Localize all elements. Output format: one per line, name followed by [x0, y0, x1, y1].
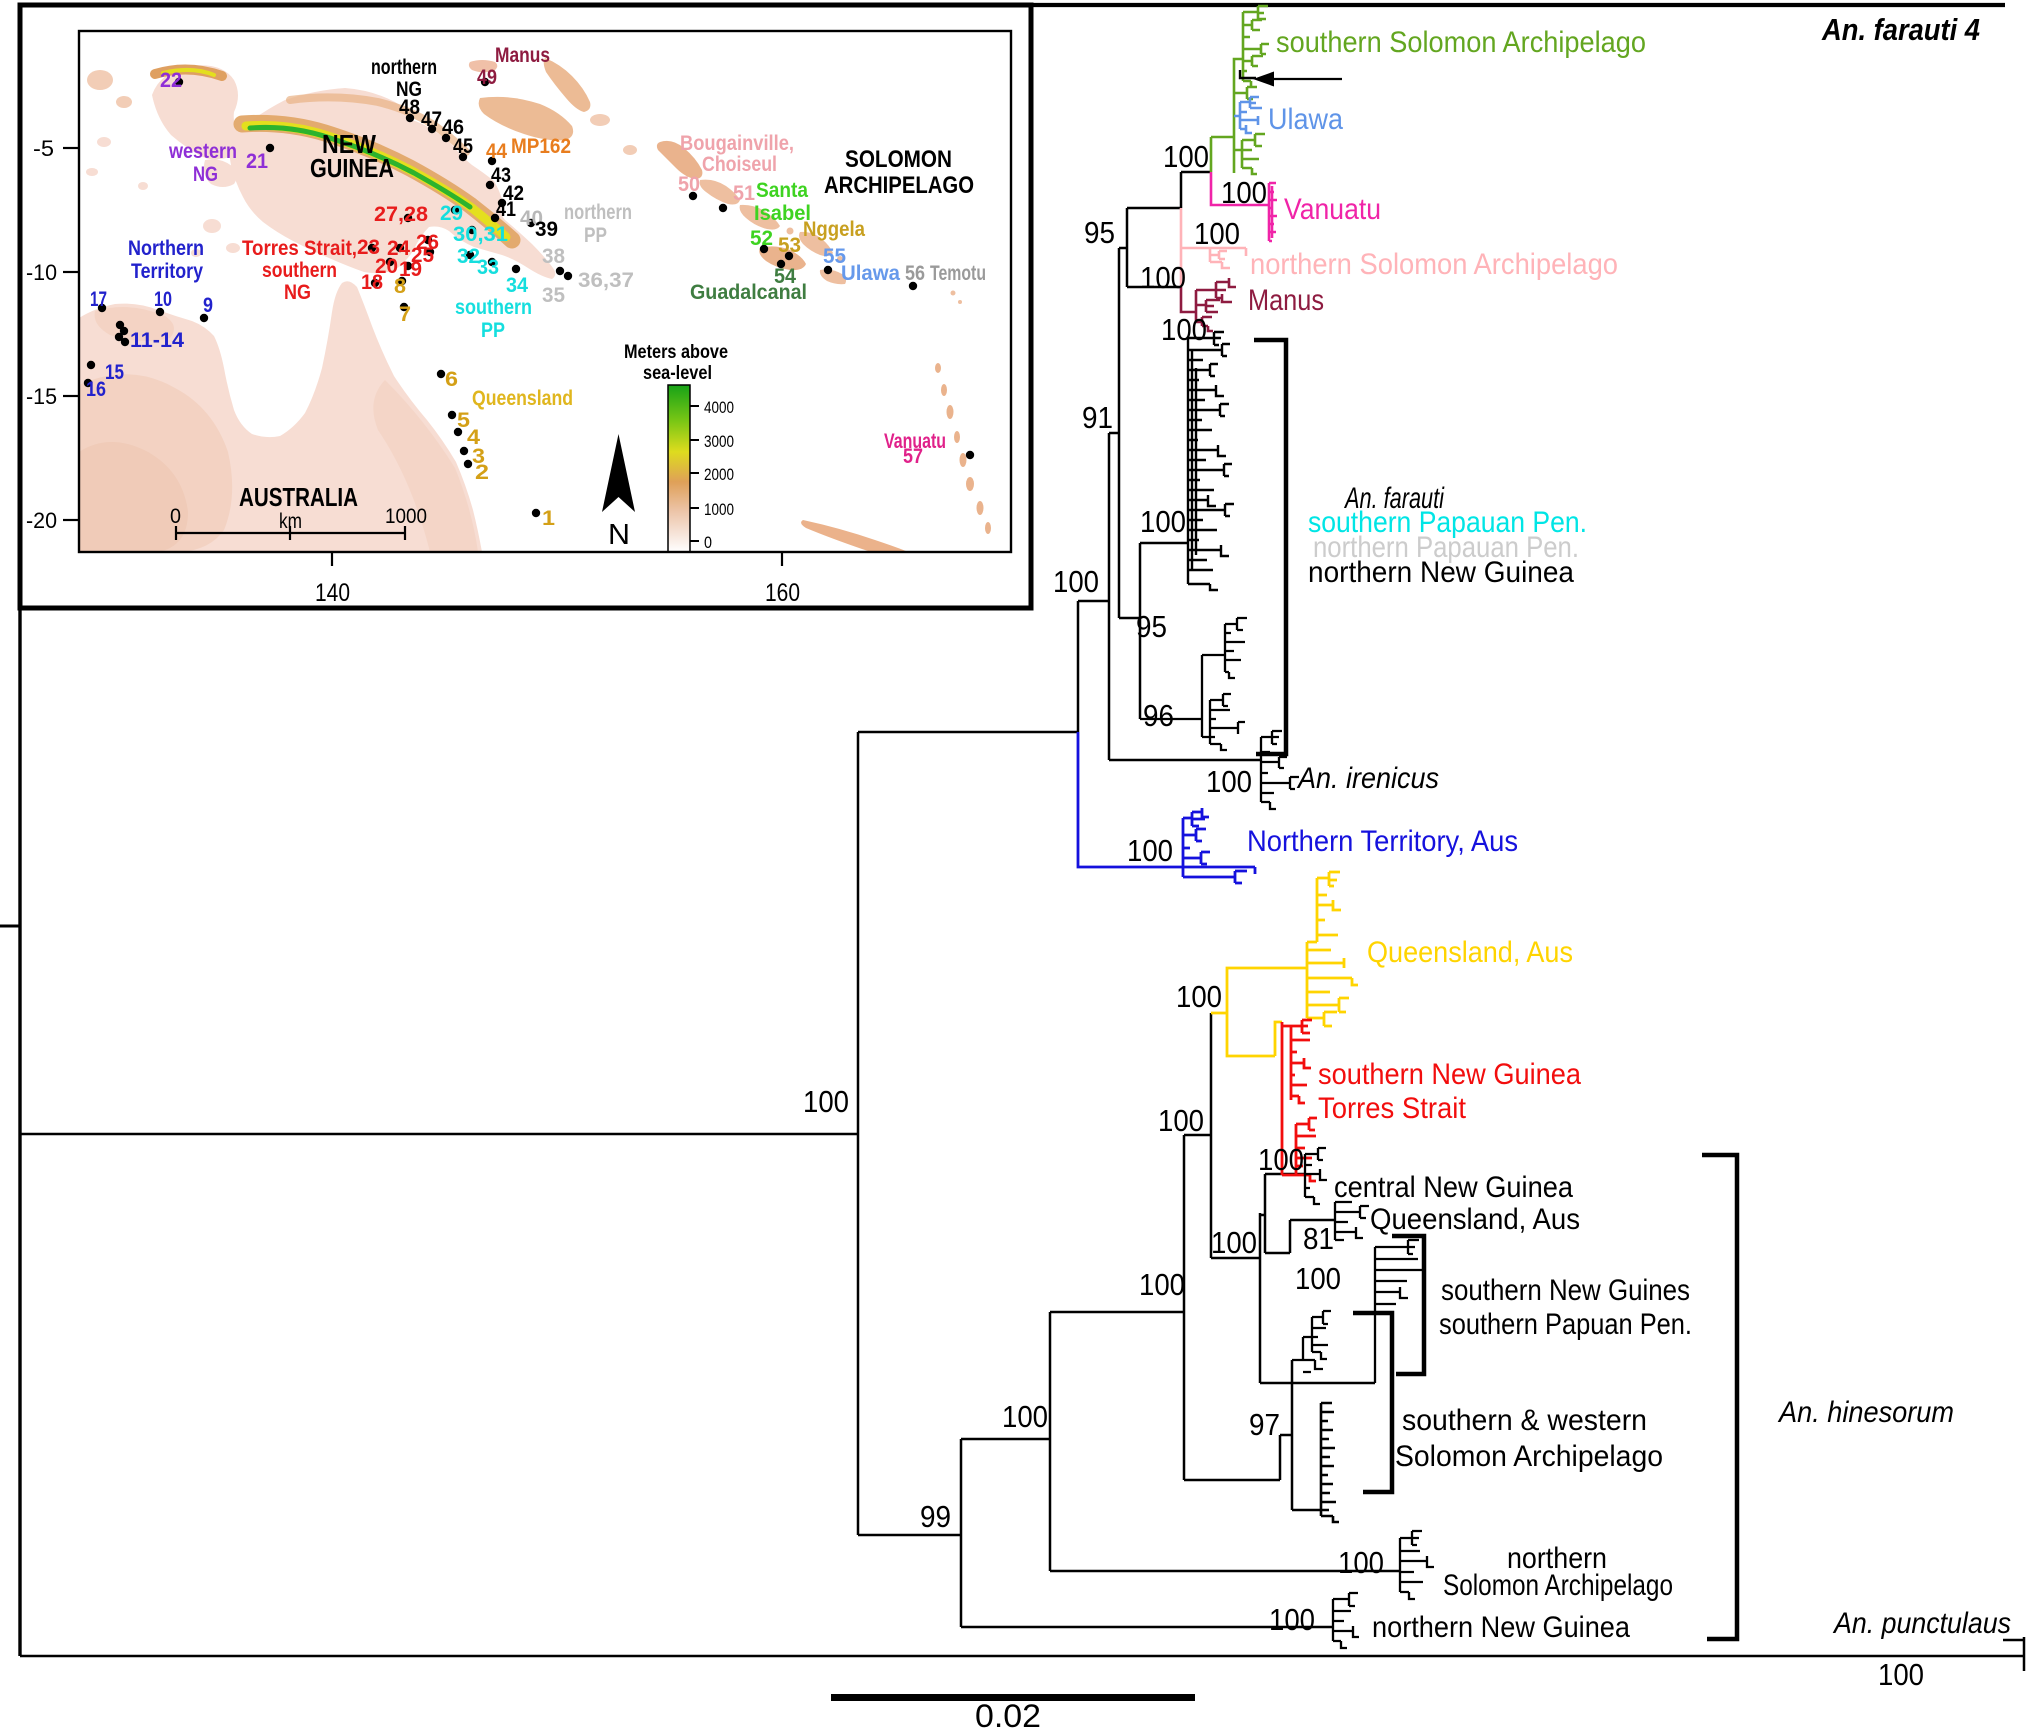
svg-text:51: 51	[733, 182, 755, 205]
svg-text:100: 100	[1163, 139, 1209, 174]
svg-text:99: 99	[920, 1499, 951, 1534]
svg-text:53: 53	[778, 234, 801, 257]
svg-text:100: 100	[1140, 504, 1186, 539]
svg-text:Guadalcanal: Guadalcanal	[690, 281, 807, 304]
svg-text:140: 140	[315, 579, 350, 607]
svg-text:southern: southern	[455, 296, 532, 319]
svg-text:56: 56	[905, 262, 925, 285]
svg-text:MP162: MP162	[511, 135, 571, 158]
svg-text:100: 100	[1053, 564, 1099, 599]
svg-text:30,31: 30,31	[453, 223, 508, 246]
svg-text:100: 100	[1206, 764, 1252, 799]
svg-text:100: 100	[1127, 833, 1173, 868]
svg-text:100: 100	[1258, 1142, 1304, 1177]
svg-text:northern New Guinea: northern New Guinea	[1308, 556, 1574, 589]
svg-text:33: 33	[477, 256, 499, 279]
svg-text:100: 100	[1161, 312, 1207, 347]
svg-text:1000: 1000	[385, 505, 427, 528]
svg-text:100: 100	[1221, 175, 1267, 210]
svg-text:southern & western: southern & western	[1402, 1404, 1647, 1437]
svg-text:100: 100	[1140, 260, 1186, 295]
svg-text:100: 100	[1269, 1602, 1315, 1637]
svg-text:27,28: 27,28	[374, 203, 428, 226]
svg-text:ARCHIPELAGO: ARCHIPELAGO	[824, 172, 974, 199]
svg-text:49: 49	[477, 66, 497, 89]
svg-text:100: 100	[1878, 1657, 1924, 1692]
svg-text:21: 21	[246, 150, 268, 173]
svg-text:17: 17	[90, 288, 107, 311]
svg-text:50: 50	[678, 173, 700, 196]
svg-text:2: 2	[475, 461, 489, 484]
svg-text:8: 8	[394, 275, 406, 298]
svg-text:100: 100	[803, 1084, 849, 1119]
svg-text:3000: 3000	[704, 432, 734, 451]
svg-text:1000: 1000	[704, 500, 734, 519]
svg-text:Santa: Santa	[756, 179, 808, 202]
svg-text:An. farauti 4: An. farauti 4	[1821, 12, 1980, 47]
svg-text:Queensland: Queensland	[472, 387, 573, 410]
svg-text:AUSTRALIA: AUSTRALIA	[239, 482, 358, 512]
svg-text:6: 6	[445, 368, 458, 391]
svg-text:15: 15	[105, 361, 124, 384]
svg-text:18: 18	[361, 271, 383, 294]
svg-text:km: km	[279, 510, 302, 533]
svg-text:Torres Strait: Torres Strait	[1318, 1092, 1467, 1125]
svg-text:34: 34	[506, 274, 528, 297]
svg-text:48: 48	[399, 96, 420, 119]
svg-text:NG: NG	[193, 163, 218, 186]
svg-text:GUINEA: GUINEA	[310, 153, 394, 183]
svg-text:Meters above: Meters above	[624, 342, 728, 363]
svg-text:Manus: Manus	[1248, 284, 1324, 317]
svg-text:Queensland, Aus: Queensland, Aus	[1370, 1203, 1580, 1236]
svg-text:38: 38	[542, 245, 565, 268]
svg-text:44: 44	[486, 140, 507, 163]
svg-text:1: 1	[542, 507, 555, 530]
svg-text:southern Solomon Archipelago: southern Solomon Archipelago	[1276, 26, 1646, 59]
svg-text:western: western	[168, 140, 237, 163]
svg-text:35: 35	[542, 284, 565, 307]
svg-text:Solomon Archipelago: Solomon Archipelago	[1395, 1440, 1663, 1473]
svg-text:45: 45	[453, 135, 473, 158]
svg-text:Queensland, Aus: Queensland, Aus	[1367, 936, 1573, 969]
svg-text:southern New Guines: southern New Guines	[1441, 1274, 1690, 1307]
svg-text:Vanuatu: Vanuatu	[1284, 193, 1381, 226]
svg-text:sea-level: sea-level	[643, 363, 712, 384]
svg-text:100: 100	[1158, 1103, 1204, 1138]
svg-text:Ulawa: Ulawa	[1268, 103, 1343, 136]
svg-text:100: 100	[1176, 979, 1222, 1014]
svg-text:81: 81	[1303, 1221, 1334, 1256]
svg-text:southern: southern	[262, 259, 337, 282]
svg-text:Nggela: Nggela	[803, 218, 865, 241]
svg-text:100: 100	[1338, 1545, 1384, 1580]
svg-text:95: 95	[1136, 609, 1167, 644]
svg-text:95: 95	[1084, 215, 1115, 250]
svg-text:36,37: 36,37	[578, 269, 634, 292]
svg-text:SOLOMON: SOLOMON	[845, 146, 952, 173]
svg-text:0: 0	[704, 533, 712, 552]
svg-text:100: 100	[1002, 1399, 1048, 1434]
svg-text:57: 57	[903, 445, 923, 468]
svg-text:11-14: 11-14	[130, 329, 184, 352]
svg-text:4000: 4000	[704, 398, 734, 417]
svg-text:-15: -15	[26, 384, 57, 409]
svg-text:northern New Guinea: northern New Guinea	[1372, 1611, 1630, 1644]
svg-text:An. irenicus: An. irenicus	[1296, 762, 1439, 795]
svg-text:PP: PP	[584, 224, 607, 247]
svg-text:An. hinesorum: An. hinesorum	[1777, 1396, 1954, 1429]
svg-text:Solomon Archipelago: Solomon Archipelago	[1443, 1569, 1673, 1602]
svg-text:southern Papuan Pen.: southern Papuan Pen.	[1439, 1308, 1692, 1341]
svg-text:47: 47	[421, 108, 442, 131]
svg-text:100: 100	[1211, 1225, 1257, 1260]
svg-text:PP: PP	[481, 319, 505, 342]
svg-text:Bougainville,: Bougainville,	[680, 132, 794, 155]
svg-text:southern New Guinea: southern New Guinea	[1318, 1058, 1581, 1091]
svg-text:39: 39	[535, 218, 558, 241]
svg-text:northern Solomon Archipelago: northern Solomon Archipelago	[1250, 248, 1618, 281]
svg-text:central New Guinea: central New Guinea	[1334, 1171, 1573, 1204]
svg-text:96: 96	[1143, 698, 1174, 733]
svg-text:0.02: 0.02	[975, 1698, 1041, 1728]
svg-text:97: 97	[1249, 1407, 1280, 1442]
svg-text:160: 160	[765, 579, 800, 607]
svg-text:10: 10	[154, 288, 172, 311]
svg-text:9: 9	[203, 294, 213, 317]
svg-text:Territory: Territory	[131, 260, 203, 283]
svg-text:16: 16	[86, 378, 106, 401]
svg-text:Ulawa: Ulawa	[841, 262, 900, 285]
svg-text:-20: -20	[26, 508, 57, 533]
svg-text:Torres Strait,: Torres Strait,	[242, 237, 357, 260]
svg-text:An. punctulaus: An. punctulaus	[1832, 1607, 2011, 1640]
svg-text:Northern Territory, Aus: Northern Territory, Aus	[1247, 825, 1518, 858]
svg-text:100: 100	[1139, 1267, 1185, 1302]
svg-text:northern: northern	[371, 56, 437, 79]
svg-text:2000: 2000	[704, 465, 734, 484]
svg-text:7: 7	[399, 303, 411, 326]
svg-text:Temotu: Temotu	[930, 262, 986, 285]
svg-text:41: 41	[496, 198, 516, 221]
svg-text:-5: -5	[33, 136, 54, 161]
svg-text:Choiseul: Choiseul	[702, 153, 777, 176]
svg-text:100: 100	[1194, 216, 1240, 251]
svg-text:0: 0	[170, 505, 181, 528]
svg-text:29: 29	[440, 202, 463, 225]
svg-text:Northern: Northern	[128, 237, 204, 260]
svg-text:N: N	[608, 519, 630, 551]
svg-text:-10: -10	[26, 260, 57, 285]
svg-text:northern: northern	[564, 201, 632, 224]
svg-text:100: 100	[1295, 1261, 1341, 1296]
svg-text:52: 52	[750, 227, 773, 250]
svg-text:NG: NG	[284, 281, 311, 304]
svg-text:Manus: Manus	[495, 44, 550, 67]
svg-text:91: 91	[1082, 400, 1113, 435]
svg-text:22: 22	[160, 69, 182, 92]
